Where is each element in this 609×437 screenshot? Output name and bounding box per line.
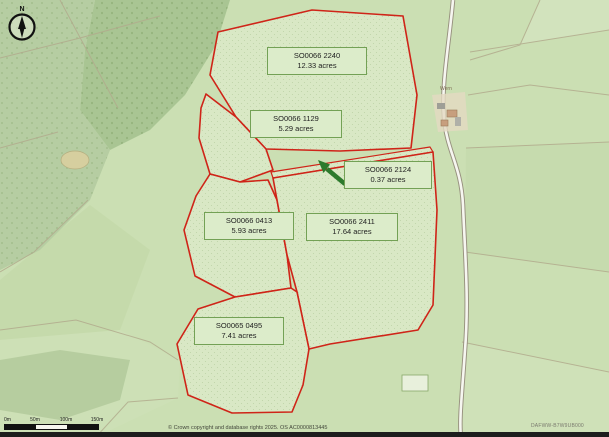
parcel-area: 5.29 acres bbox=[253, 124, 339, 134]
minor-annotation-box bbox=[402, 375, 428, 391]
parcel-id: SO0066 1129 bbox=[253, 114, 339, 124]
scale-tick-label: 50m bbox=[30, 417, 40, 423]
parcel-label-so0066-1129: SO0066 1129 5.29 acres bbox=[250, 110, 342, 138]
map-reference-code: DAFWW-B7W9UB000 bbox=[531, 423, 584, 429]
scale-segment bbox=[67, 425, 98, 429]
parcel-area: 7.41 acres bbox=[197, 331, 281, 341]
parcel-id: SO0066 2240 bbox=[270, 51, 364, 61]
scale-tick-label: 150m bbox=[91, 417, 104, 423]
parcel-area: 17.64 acres bbox=[309, 227, 395, 237]
parcel-label-so0066-0413: SO0066 0413 5.93 acres bbox=[204, 212, 294, 240]
parcel-label-so0066-2240: SO0066 2240 12.33 acres bbox=[267, 47, 367, 75]
bottom-border-strip bbox=[0, 432, 609, 437]
scale-bar-segments bbox=[4, 424, 99, 430]
copyright-text: © Crown copyright and database rights 20… bbox=[168, 425, 327, 431]
scale-tick-label: 0m bbox=[4, 417, 11, 423]
parcel-label-so0066-2124: SO0066 2124 0.37 acres bbox=[344, 161, 432, 189]
scale-tick-label: 100m bbox=[60, 417, 73, 423]
map-canvas: Wern N SO0066 2240 12.33 acr bbox=[0, 0, 609, 437]
scale-segment bbox=[5, 425, 36, 429]
parcel-id: SO0066 2124 bbox=[347, 165, 429, 175]
scale-bar: 0m 50m 100m 150m bbox=[4, 417, 108, 431]
parcel-id: SO0066 0413 bbox=[207, 216, 291, 226]
parcel-id: SO0065 0495 bbox=[197, 321, 281, 331]
place-label: Wern bbox=[440, 86, 452, 92]
parcel-label-so0065-0495: SO0065 0495 7.41 acres bbox=[194, 317, 284, 345]
scale-segment bbox=[36, 425, 67, 429]
parcel-area: 5.93 acres bbox=[207, 226, 291, 236]
compass-north-label: N bbox=[19, 6, 24, 13]
parcel-area: 12.33 acres bbox=[270, 61, 364, 71]
parcel-id: SO0066 2411 bbox=[309, 217, 395, 227]
parcel-area: 0.37 acres bbox=[347, 175, 429, 185]
clearing-shape bbox=[61, 151, 89, 169]
parcel-label-so0066-2411: SO0066 2411 17.64 acres bbox=[306, 213, 398, 241]
